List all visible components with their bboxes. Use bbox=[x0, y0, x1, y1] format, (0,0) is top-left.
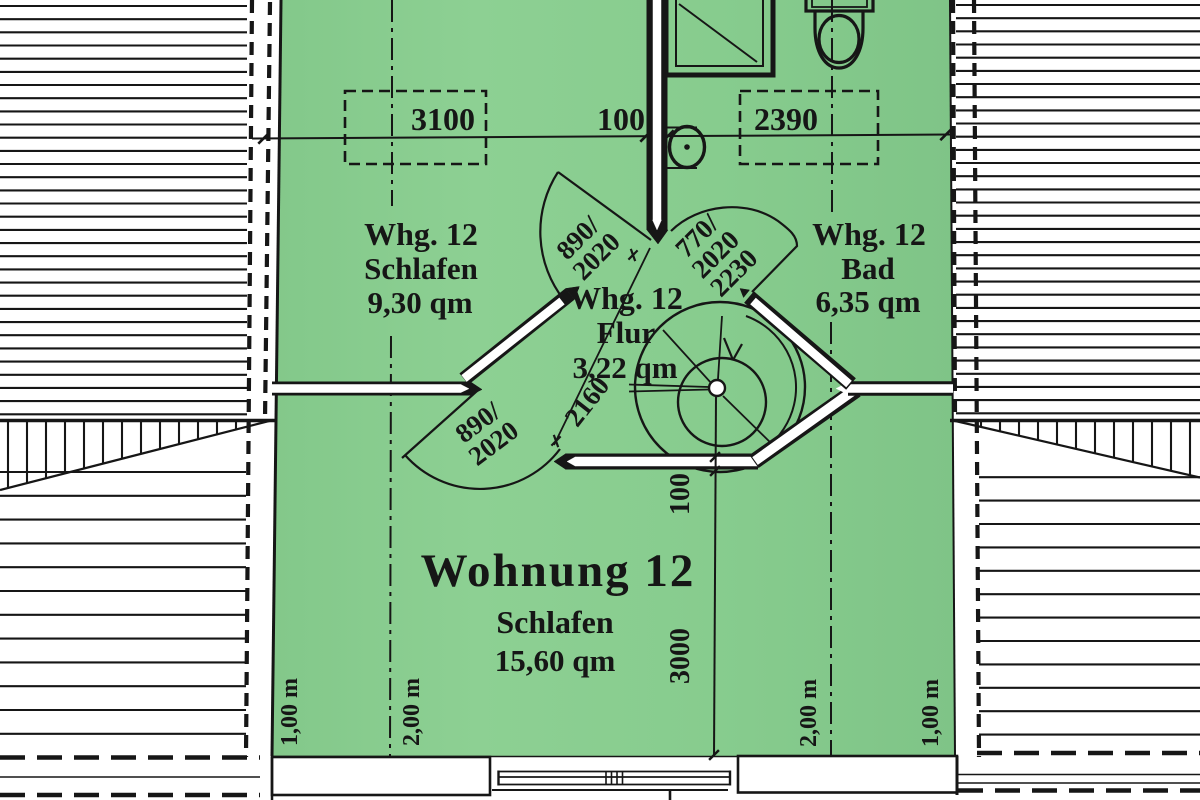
svg-text:100: 100 bbox=[665, 473, 696, 515]
svg-text:1,00 m: 1,00 m bbox=[918, 679, 944, 747]
svg-text:Schlafen: Schlafen bbox=[364, 251, 478, 286]
svg-text:9,30 qm: 9,30 qm bbox=[367, 285, 472, 320]
svg-text:6,35 qm: 6,35 qm bbox=[815, 284, 920, 319]
svg-text:Wohnung 12: Wohnung 12 bbox=[421, 545, 696, 597]
svg-text:3000: 3000 bbox=[665, 628, 696, 684]
svg-text:100: 100 bbox=[597, 101, 645, 137]
svg-text:1,00 m: 1,00 m bbox=[277, 678, 303, 746]
svg-text:3100: 3100 bbox=[411, 101, 475, 137]
svg-text:2,00 m: 2,00 m bbox=[399, 678, 425, 746]
svg-text:Whg. 12: Whg. 12 bbox=[364, 216, 478, 252]
svg-text:2,00 m: 2,00 m bbox=[796, 679, 822, 747]
svg-text:15,60 qm: 15,60 qm bbox=[495, 643, 616, 678]
svg-text:Whg. 12: Whg. 12 bbox=[812, 216, 926, 252]
svg-text:2390: 2390 bbox=[754, 101, 818, 137]
svg-text:Bad: Bad bbox=[841, 251, 894, 286]
svg-text:Flur: Flur bbox=[597, 315, 656, 350]
svg-text:Schlafen: Schlafen bbox=[496, 604, 614, 640]
